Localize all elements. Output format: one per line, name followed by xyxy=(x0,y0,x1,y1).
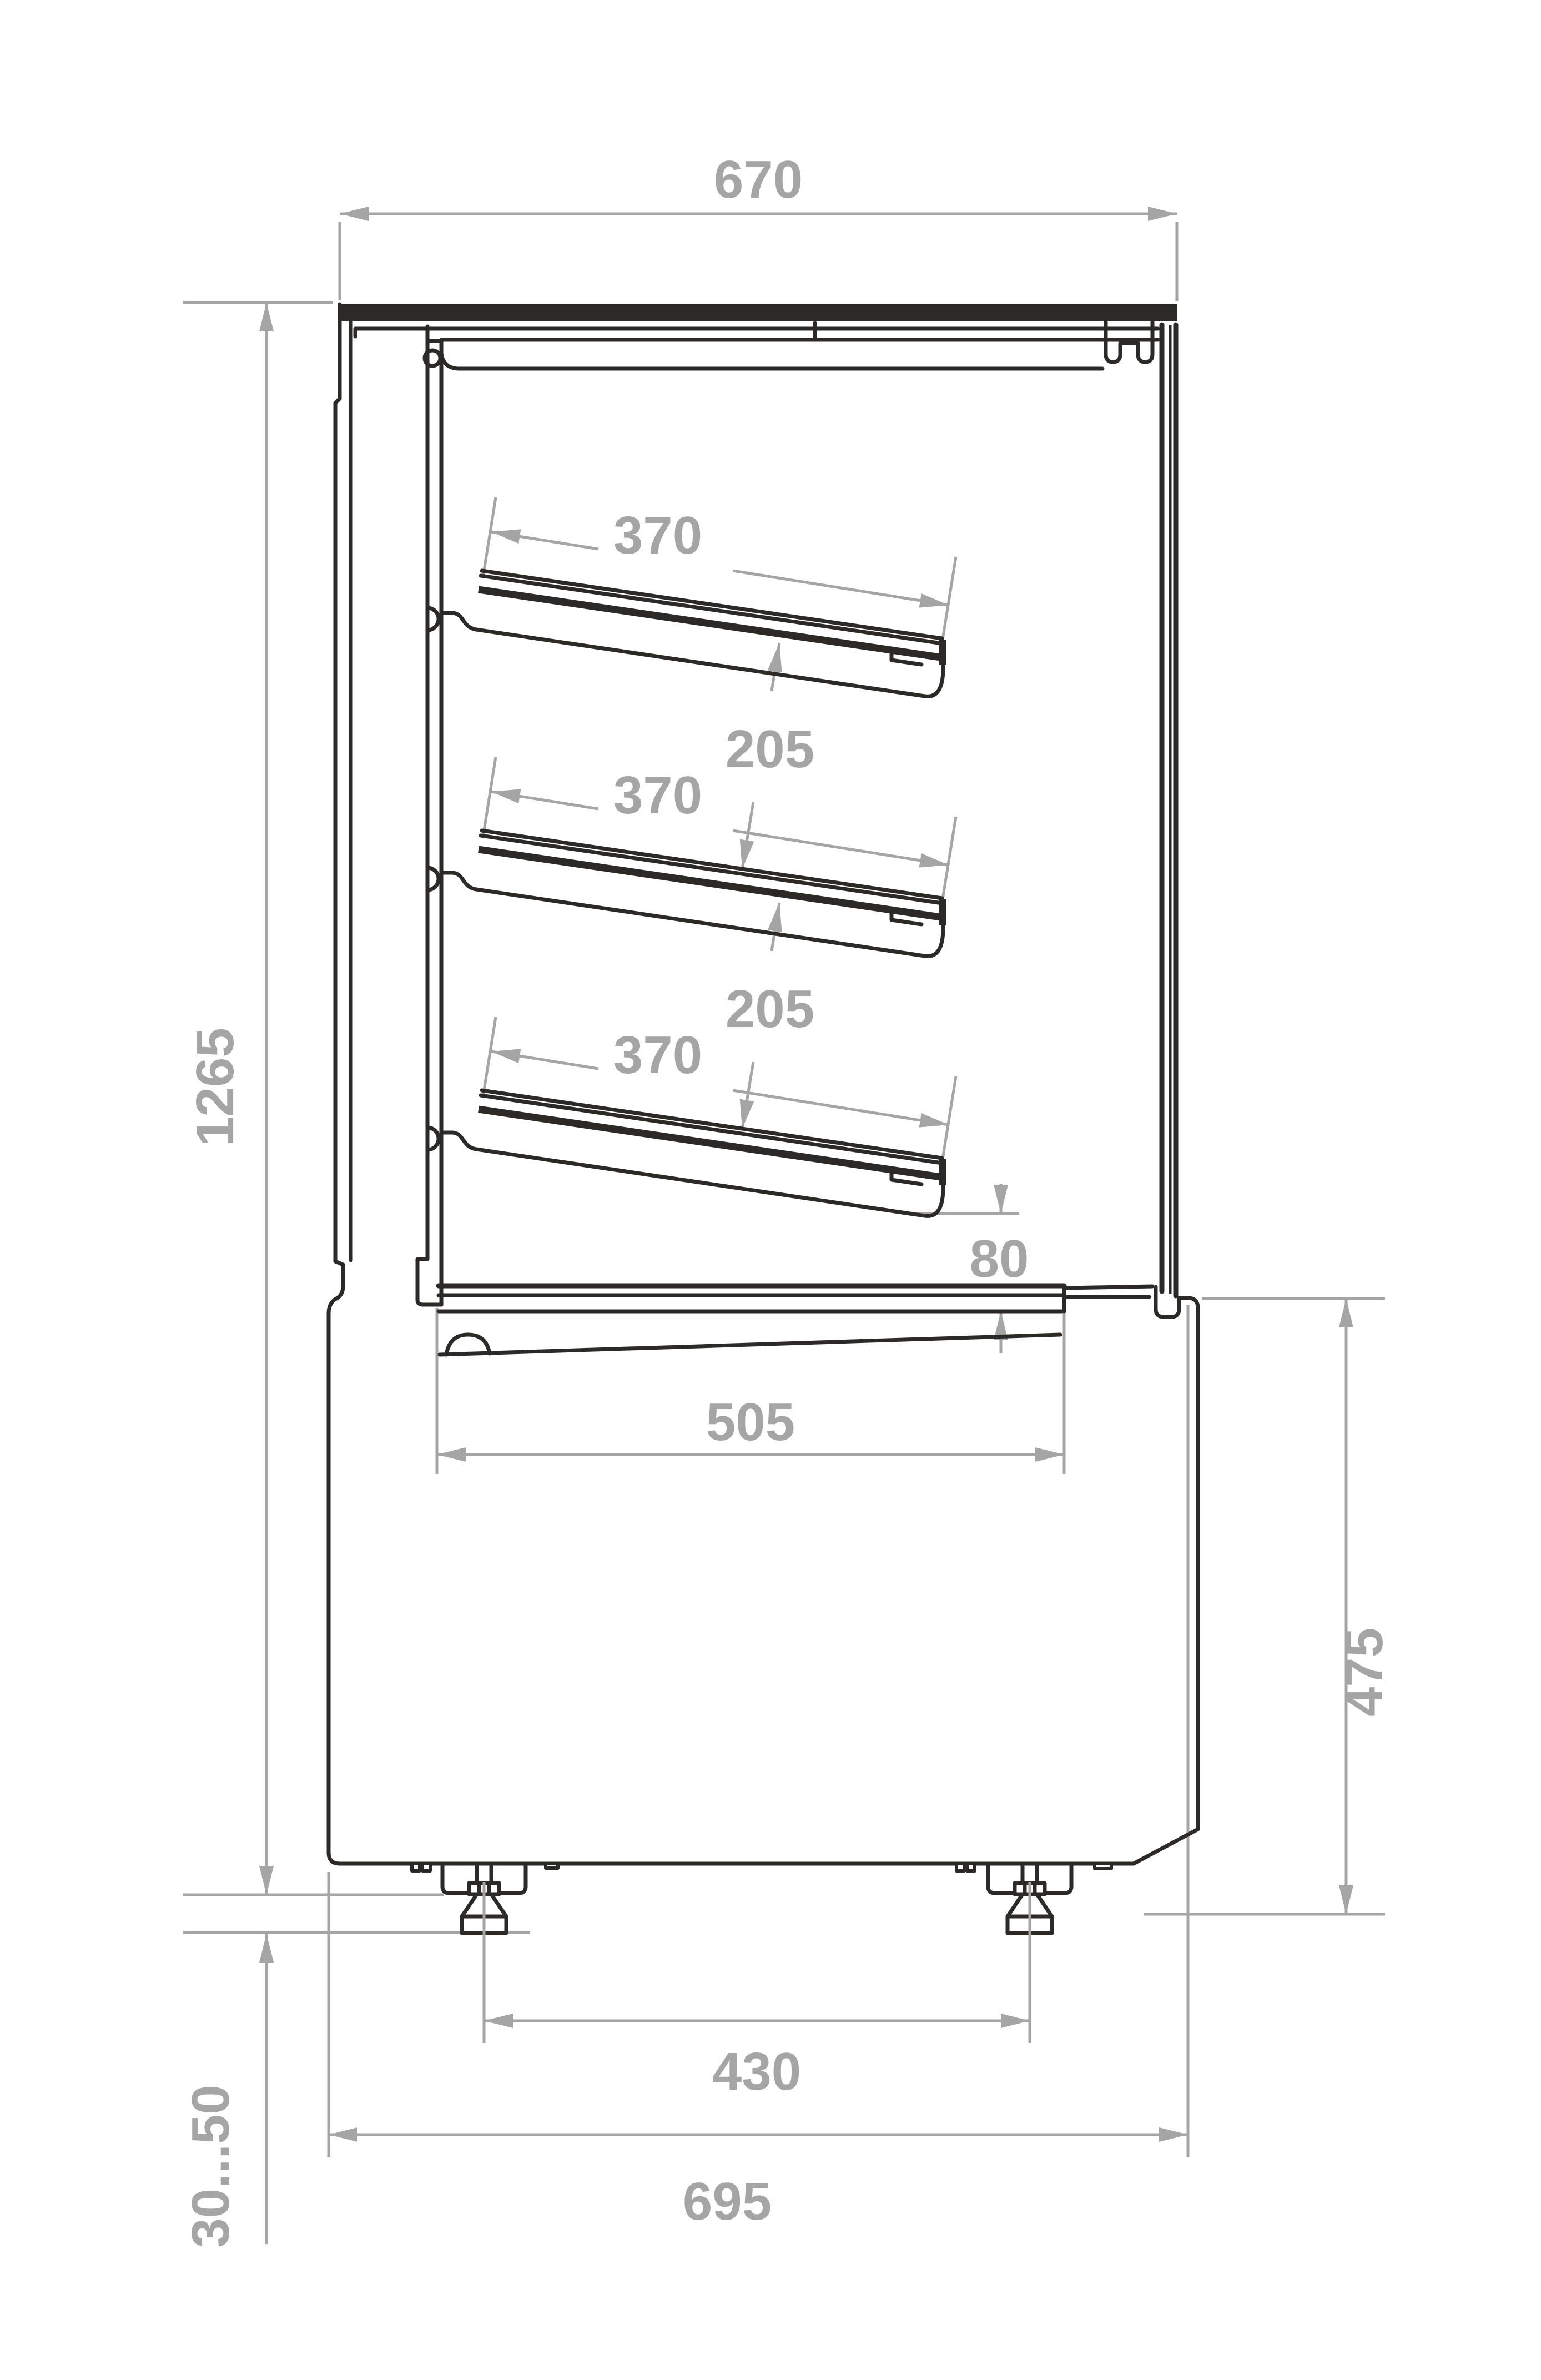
dim-label-shelf-depth-3: 370 xyxy=(613,1025,702,1085)
dim-label-top-width: 670 xyxy=(714,150,803,209)
canopy-underside xyxy=(441,353,1102,369)
top-frame-bar xyxy=(340,304,1177,321)
dim-label-shelf-spacing-2: 205 xyxy=(726,979,814,1039)
drain-tray xyxy=(440,1335,1060,1355)
back-panel xyxy=(417,326,441,1305)
dim-label-shelf-depth-1: 370 xyxy=(613,506,702,565)
dim-shelf-depth-3 xyxy=(483,1017,956,1163)
dimension-lines xyxy=(183,214,1385,2244)
dim-label-base-height: 475 xyxy=(1334,1628,1394,1717)
dim-feet-spacing xyxy=(484,1882,1030,2043)
dim-top-width xyxy=(340,214,1177,301)
dim-label-base-depth: 695 xyxy=(683,2172,772,2231)
technical-drawing-page: 670 370 370 370 205 205 80 505 1265 475 … xyxy=(0,0,1541,2380)
dim-label-feet-spacing: 430 xyxy=(712,2042,801,2101)
shelf-3 xyxy=(441,1090,943,1216)
dim-shelf-depth-2 xyxy=(483,757,956,903)
dim-label-feet-range: 30...50 xyxy=(181,2085,240,2248)
dim-label-well-depth: 505 xyxy=(706,1392,795,1452)
rear-wall-outer xyxy=(329,304,343,1864)
dim-label-front-gap: 80 xyxy=(970,1229,1029,1289)
dim-label-shelf-spacing-1: 205 xyxy=(726,719,814,779)
front-glass xyxy=(1162,325,1176,1296)
display-case-section-drawing: 670 370 370 370 205 205 80 505 1265 475 … xyxy=(0,0,1541,2380)
dim-label-overall-height: 1265 xyxy=(185,1028,245,1146)
shelf-1 xyxy=(441,571,943,696)
cabinet-linework xyxy=(329,304,1198,1933)
dim-label-shelf-depth-2: 370 xyxy=(613,766,702,825)
deck xyxy=(439,1286,1179,1355)
dim-shelf-depth-1 xyxy=(483,497,956,643)
dim-base-height xyxy=(1144,1299,1385,1914)
shelf-2 xyxy=(441,831,943,956)
